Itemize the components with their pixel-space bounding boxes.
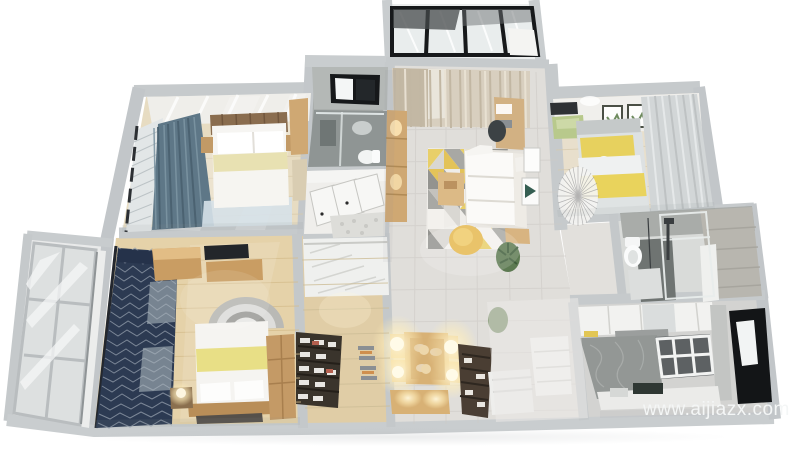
svg-text:www.aijiazx.com: www.aijiazx.com bbox=[642, 399, 790, 420]
